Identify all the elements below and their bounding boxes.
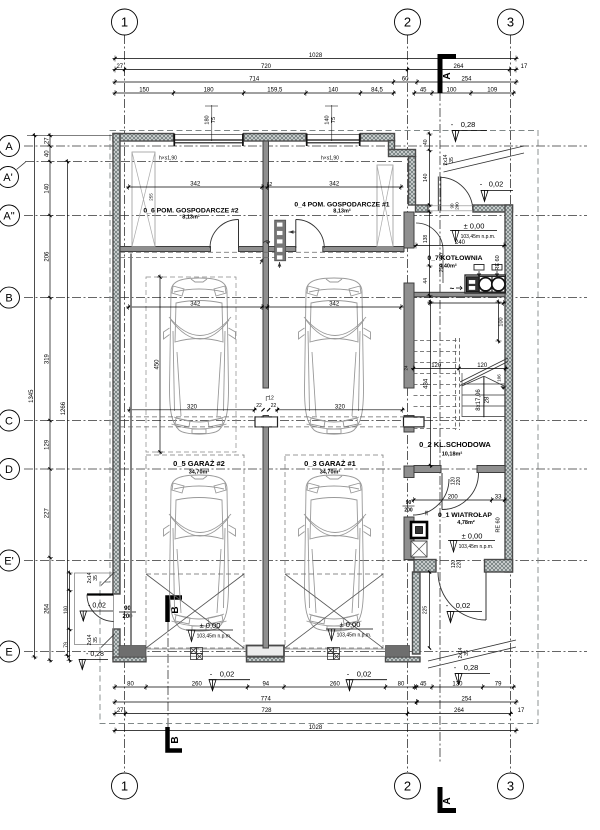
svg-text:0_1 WIATROŁAP: 0_1 WIATROŁAP — [438, 512, 492, 519]
svg-text:342: 342 — [190, 182, 201, 188]
svg-text:RE 60: RE 60 — [496, 517, 502, 532]
svg-text:200: 200 — [455, 202, 460, 210]
svg-text:159,5: 159,5 — [267, 88, 283, 94]
svg-text:79: 79 — [495, 682, 502, 688]
svg-text:± 0,00: ± 0,00 — [340, 620, 361, 629]
svg-text:A: A — [442, 797, 453, 804]
svg-text:A": A" — [3, 211, 14, 223]
svg-text:1345: 1345 — [29, 389, 35, 403]
svg-text:27: 27 — [116, 64, 123, 70]
svg-text:260: 260 — [192, 682, 203, 688]
svg-text:0_6 POM. GOSPODARCZE #2: 0_6 POM. GOSPODARCZE #2 — [143, 208, 238, 215]
svg-text:17: 17 — [521, 64, 528, 70]
svg-text:B: B — [5, 293, 12, 305]
svg-text:264: 264 — [453, 64, 464, 70]
svg-text:106: 106 — [497, 374, 502, 382]
svg-text:1: 1 — [121, 15, 128, 30]
svg-text:254: 254 — [461, 697, 472, 703]
svg-text:35: 35 — [93, 637, 99, 643]
svg-text:140: 140 — [423, 173, 429, 182]
svg-text:728: 728 — [261, 708, 272, 714]
svg-text:1: 1 — [121, 779, 128, 794]
svg-text:44: 44 — [423, 278, 429, 284]
svg-text:RE 60: RE 60 — [495, 255, 501, 270]
svg-text:3: 3 — [507, 15, 514, 30]
svg-text:45: 45 — [420, 682, 427, 688]
svg-text:A': A' — [3, 172, 12, 184]
svg-text:± 0,00: ± 0,00 — [464, 222, 485, 231]
svg-text:319: 319 — [45, 353, 51, 364]
svg-text:33: 33 — [495, 495, 502, 501]
svg-text:255: 255 — [149, 193, 154, 201]
svg-text:3: 3 — [507, 779, 514, 794]
svg-text:± 0,00: ± 0,00 — [462, 532, 483, 541]
svg-text:h×s1,90: h×s1,90 — [159, 156, 177, 162]
svg-text:35: 35 — [93, 575, 99, 581]
svg-text:2: 2 — [404, 779, 411, 794]
svg-text:0,28: 0,28 — [461, 120, 476, 129]
svg-text:138: 138 — [423, 235, 429, 244]
svg-text:260: 260 — [330, 682, 341, 688]
svg-text:0_7 KOTŁOWNIA: 0_7 KOTŁOWNIA — [427, 255, 482, 262]
svg-text:484: 484 — [424, 378, 430, 389]
svg-text:225: 225 — [423, 606, 429, 615]
svg-text:12: 12 — [268, 396, 274, 402]
svg-text:180: 180 — [205, 115, 211, 124]
svg-text:240: 240 — [455, 240, 466, 246]
svg-text:10,18m²: 10,18m² — [442, 451, 463, 458]
svg-text:C: C — [5, 416, 13, 428]
svg-text:103,45m n.p.m.: 103,45m n.p.m. — [459, 544, 494, 550]
svg-text:103,45m n.p.m.: 103,45m n.p.m. — [197, 634, 232, 640]
svg-text:2: 2 — [404, 15, 411, 30]
svg-text:120: 120 — [477, 363, 488, 369]
svg-text:0,02: 0,02 — [489, 180, 504, 189]
svg-text:E: E — [5, 647, 12, 659]
svg-text:320: 320 — [187, 404, 198, 410]
svg-text:254: 254 — [461, 77, 472, 83]
svg-text:27: 27 — [117, 708, 124, 714]
svg-text:103,45m n.p.m.: 103,45m n.p.m. — [461, 234, 496, 240]
svg-text:342: 342 — [329, 182, 340, 188]
svg-text:A: A — [442, 72, 453, 79]
svg-text:17: 17 — [518, 708, 525, 714]
svg-text:0_4 POM. GOSPODARCZE #1: 0_4 POM. GOSPODARCZE #1 — [294, 202, 389, 209]
svg-text:80: 80 — [398, 682, 405, 688]
svg-text:8,13m²: 8,13m² — [333, 208, 351, 215]
svg-text:200: 200 — [404, 508, 413, 514]
svg-text:35: 35 — [449, 157, 455, 163]
svg-text:103,45m n.p.m.: 103,45m n.p.m. — [337, 633, 372, 639]
svg-text:140: 140 — [325, 115, 331, 124]
svg-text:~: ~ — [450, 284, 455, 293]
svg-text:320: 320 — [335, 404, 346, 410]
svg-text:264: 264 — [45, 603, 51, 614]
svg-text:0,02: 0,02 — [357, 670, 372, 679]
svg-text:180: 180 — [204, 88, 215, 94]
svg-text:34,70m²: 34,70m² — [320, 469, 341, 476]
svg-text:E': E' — [4, 556, 13, 568]
svg-text:24: 24 — [404, 365, 409, 371]
svg-text:714: 714 — [249, 77, 260, 83]
svg-text:720: 720 — [261, 64, 272, 70]
svg-text:0,02: 0,02 — [220, 670, 235, 679]
svg-text:27: 27 — [45, 137, 51, 144]
svg-text:h×s1,90: h×s1,90 — [321, 156, 339, 162]
svg-text:D: D — [5, 464, 13, 476]
svg-text:109: 109 — [487, 88, 498, 94]
svg-text:94: 94 — [262, 682, 269, 688]
svg-text:150: 150 — [139, 88, 150, 94]
svg-text:0,02: 0,02 — [456, 601, 471, 610]
svg-text:8,13m²: 8,13m² — [182, 214, 200, 221]
svg-text:774: 774 — [261, 697, 272, 703]
svg-text:22: 22 — [256, 403, 262, 409]
svg-text:4,78m²: 4,78m² — [457, 519, 475, 526]
svg-text:140: 140 — [328, 88, 339, 94]
svg-text:220: 220 — [456, 477, 462, 486]
svg-text:40: 40 — [45, 150, 51, 157]
svg-text:0,28: 0,28 — [464, 663, 479, 672]
svg-text:34,70m²: 34,70m² — [189, 469, 210, 476]
svg-text:A: A — [5, 141, 13, 153]
svg-text:1028: 1028 — [309, 725, 323, 731]
svg-text:62: 62 — [267, 182, 273, 188]
svg-text:100: 100 — [446, 88, 457, 94]
svg-text:35: 35 — [464, 650, 470, 656]
svg-text:0_2 KL.SCHODOWA: 0_2 KL.SCHODOWA — [419, 440, 491, 449]
svg-text:120: 120 — [431, 363, 442, 369]
svg-text:264: 264 — [454, 708, 465, 714]
svg-text:140: 140 — [45, 183, 51, 194]
svg-text:129: 129 — [45, 439, 51, 450]
svg-text:22: 22 — [271, 403, 277, 409]
svg-text:4,40m²: 4,40m² — [439, 263, 457, 270]
svg-text:220: 220 — [457, 560, 463, 569]
svg-text:0_5 GARAŻ #2: 0_5 GARAŻ #2 — [173, 459, 225, 468]
svg-text:79: 79 — [64, 642, 70, 648]
svg-text:206: 206 — [45, 251, 51, 262]
svg-text:- 0,02: - 0,02 — [88, 603, 106, 610]
svg-text:40: 40 — [423, 139, 429, 145]
svg-text:200: 200 — [448, 495, 459, 501]
svg-text:342: 342 — [190, 302, 201, 308]
svg-text:60: 60 — [402, 77, 409, 83]
svg-text:0_3 GARAŻ #1: 0_3 GARAŻ #1 — [304, 459, 356, 468]
svg-text:450: 450 — [155, 359, 161, 370]
svg-text:- 0,28: - 0,28 — [86, 651, 104, 658]
svg-text:± 0,00: ± 0,00 — [200, 621, 221, 630]
svg-text:84,5: 84,5 — [371, 88, 383, 94]
svg-text:100: 100 — [499, 317, 505, 326]
svg-text:B: B — [170, 736, 181, 743]
svg-text:1028: 1028 — [309, 53, 323, 59]
svg-text:45: 45 — [420, 88, 427, 94]
svg-text:8x17,06: 8x17,06 — [476, 389, 482, 411]
svg-text:80: 80 — [127, 682, 134, 688]
svg-text:28: 28 — [485, 396, 491, 403]
svg-text:227: 227 — [45, 508, 51, 519]
svg-text:1266: 1266 — [61, 401, 67, 415]
svg-text:100: 100 — [64, 606, 70, 615]
svg-text:33: 33 — [424, 510, 429, 516]
svg-text:342: 342 — [329, 302, 340, 308]
svg-text:90: 90 — [406, 500, 412, 506]
